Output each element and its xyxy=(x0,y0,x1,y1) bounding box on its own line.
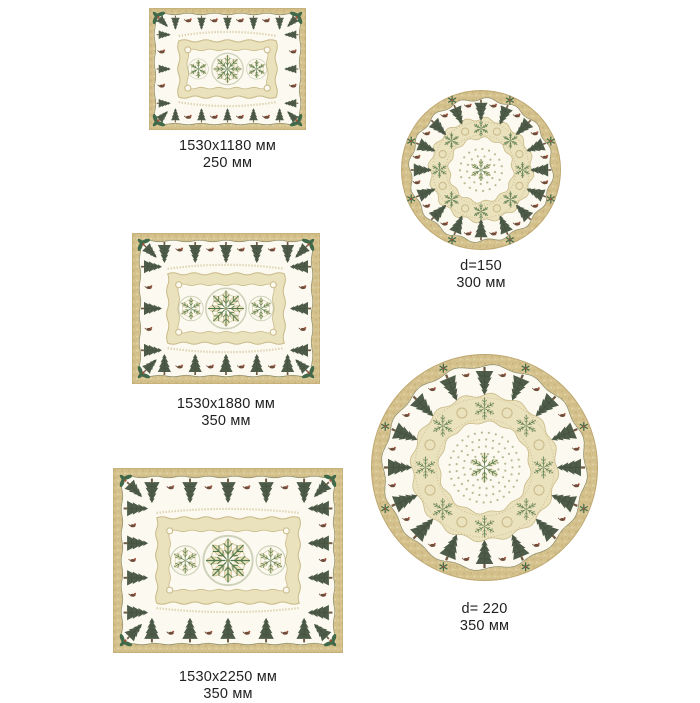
fabric-width: 300 мм xyxy=(401,275,561,292)
size-caption: 1530x2250 мм 350 мм xyxy=(113,669,343,703)
size-caption: d= 220 350 мм xyxy=(371,601,598,635)
size-caption: 1530x1180 мм 250 мм xyxy=(149,138,306,172)
tablecloth-rect-large-image xyxy=(113,468,343,653)
product-tablecloth-rect-medium: 1530x1880 мм 350 мм xyxy=(132,233,320,430)
fabric-width: 350 мм xyxy=(371,618,598,635)
size-caption: 1530x1880 мм 350 мм xyxy=(132,396,320,430)
cloth-dimensions: d=150 xyxy=(401,258,561,275)
fabric-width: 350 мм xyxy=(113,686,343,703)
fabric-width: 250 мм xyxy=(149,155,306,172)
tablecloth-rect-medium-image xyxy=(132,233,320,384)
tablecloth-round-large-image xyxy=(371,354,598,581)
product-tablecloth-rect-large: 1530x2250 мм 350 мм xyxy=(113,468,343,703)
cloth-dimensions: 1530x1180 мм xyxy=(149,138,306,155)
product-tablecloth-round-small: d=150 300 мм xyxy=(401,90,561,292)
cloth-dimensions: 1530x2250 мм xyxy=(113,669,343,686)
fabric-width: 350 мм xyxy=(132,413,320,430)
cloth-dimensions: 1530x1880 мм xyxy=(132,396,320,413)
catalog-sheet: 1530x1180 мм 250 мм xyxy=(0,0,700,700)
size-caption: d=150 300 мм xyxy=(401,258,561,292)
tablecloth-round-small-image xyxy=(401,90,561,250)
tablecloth-rect-small-image xyxy=(149,8,306,130)
product-tablecloth-round-large: d= 220 350 мм xyxy=(371,354,598,635)
product-tablecloth-rect-small: 1530x1180 мм 250 мм xyxy=(149,8,306,172)
cloth-dimensions: d= 220 xyxy=(371,601,598,618)
